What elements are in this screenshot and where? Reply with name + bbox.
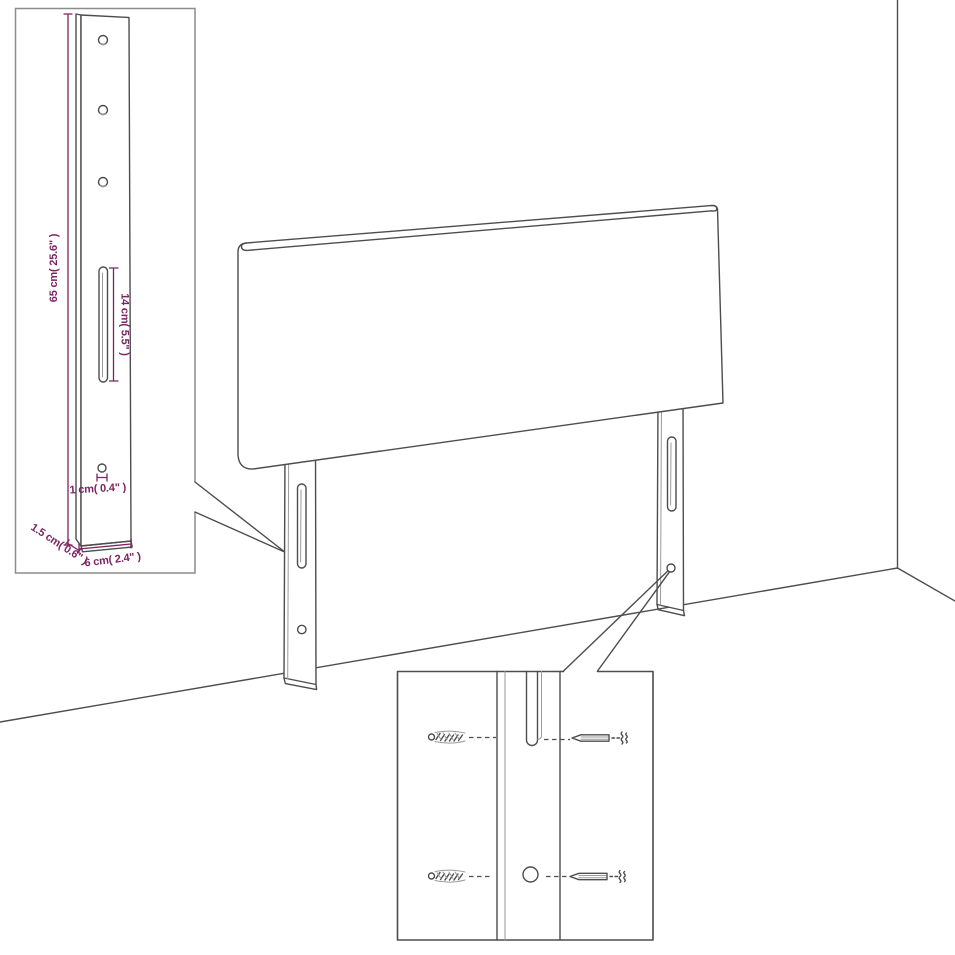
callout-lines xyxy=(195,482,670,671)
strip-round-hole xyxy=(523,867,538,882)
height-dimension-label: 65 cm( 25.6" ) xyxy=(48,233,60,302)
wall-plug-icon xyxy=(429,870,466,882)
screw-icon xyxy=(572,732,627,744)
diagram-canvas: 65 cm( 25.6" ) 14 cm( 5.5" ) 1 cm( 0.4" … xyxy=(0,0,955,955)
keyhole-slot-depth xyxy=(538,672,542,740)
headboard-assembly xyxy=(238,205,723,689)
hardware-inset xyxy=(398,672,654,941)
slot-dimension-label: 14 cm( 5.5" ) xyxy=(119,293,131,356)
hardware-top-row xyxy=(429,731,628,744)
hardware-inset-border xyxy=(398,672,654,941)
headboard-panel xyxy=(238,205,723,469)
diagram-page: 65 cm( 25.6" ) 14 cm( 5.5" ) 1 cm( 0.4" … xyxy=(0,0,955,955)
headboard-left-leg xyxy=(284,446,317,690)
width-dimension-label: 6 cm( 2.4" ) xyxy=(84,551,142,570)
leg-detail-inset: 65 cm( 25.6" ) 14 cm( 5.5" ) 1 cm( 0.4" … xyxy=(16,9,196,574)
height-dimension-line xyxy=(64,14,73,545)
keyhole-slot xyxy=(527,672,538,746)
leg-strip-detail xyxy=(497,672,560,941)
callout-lines-left-inset xyxy=(195,482,284,552)
bracket-side-view xyxy=(76,14,132,552)
bracket-side-face xyxy=(76,14,81,546)
floor-line-right xyxy=(898,568,955,601)
floor-line-left xyxy=(0,568,898,722)
height-dimension: 65 cm( 25.6" ) xyxy=(48,14,73,545)
callout-lines-bottom-inset xyxy=(564,571,670,671)
wall-plug-icon xyxy=(429,731,466,743)
screw-icon xyxy=(570,871,625,883)
